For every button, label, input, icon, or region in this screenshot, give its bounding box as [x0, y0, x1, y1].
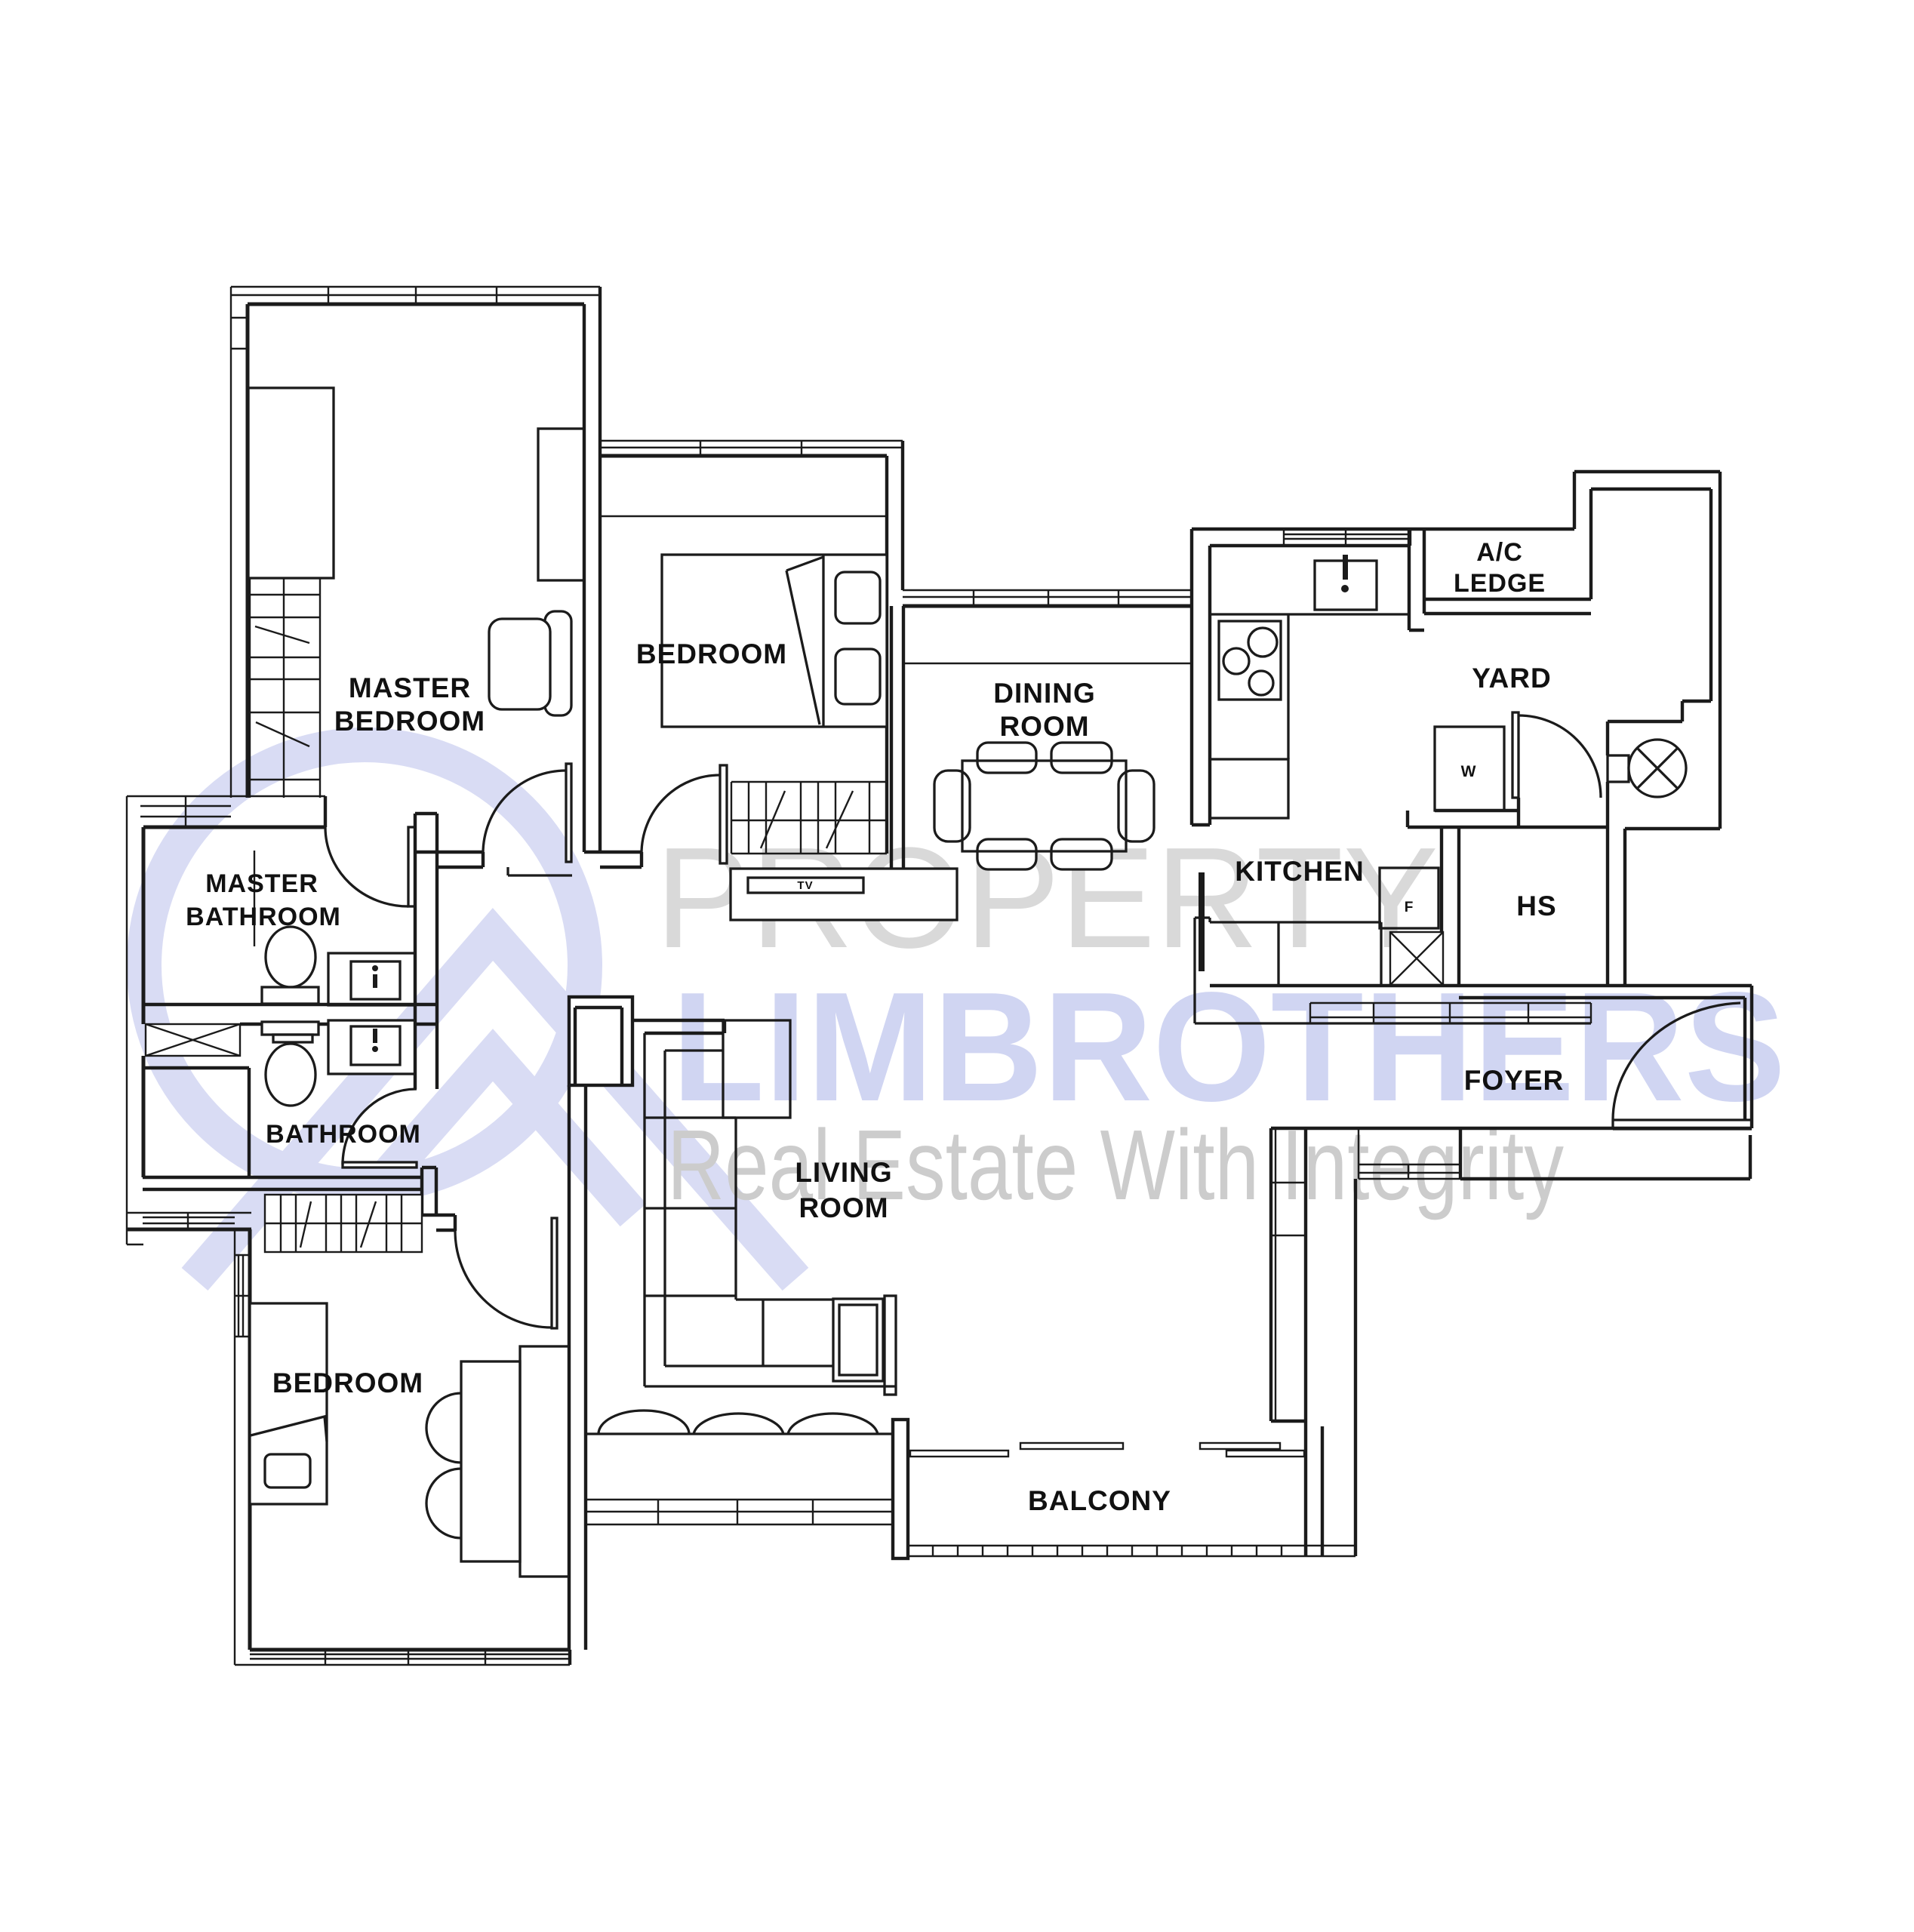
svg-text:BATHROOM: BATHROOM	[266, 1120, 421, 1149]
svg-text:BEDROOM: BEDROOM	[636, 638, 787, 669]
svg-text:KITCHEN: KITCHEN	[1235, 856, 1364, 887]
svg-text:FOYER: FOYER	[1464, 1065, 1564, 1096]
svg-text:DINING: DINING	[993, 678, 1096, 709]
svg-text:F: F	[1405, 900, 1414, 915]
svg-text:BEDROOM: BEDROOM	[272, 1367, 423, 1398]
svg-text:BALCONY: BALCONY	[1028, 1485, 1171, 1516]
svg-text:BEDROOM: BEDROOM	[334, 706, 485, 737]
svg-text:MASTER: MASTER	[205, 869, 318, 898]
svg-text:ROOM: ROOM	[999, 711, 1089, 742]
svg-text:A/C: A/C	[1476, 538, 1523, 567]
svg-text:BATHROOM: BATHROOM	[186, 903, 341, 931]
svg-text:YARD: YARD	[1472, 663, 1551, 694]
svg-text:ROOM: ROOM	[799, 1192, 888, 1223]
svg-text:HS: HS	[1516, 891, 1556, 921]
svg-text:MASTER: MASTER	[349, 672, 471, 703]
svg-text:TV: TV	[797, 879, 813, 892]
svg-text:LEDGE: LEDGE	[1454, 569, 1546, 598]
svg-text:W: W	[1461, 763, 1477, 780]
svg-text:LIVING: LIVING	[795, 1157, 892, 1188]
